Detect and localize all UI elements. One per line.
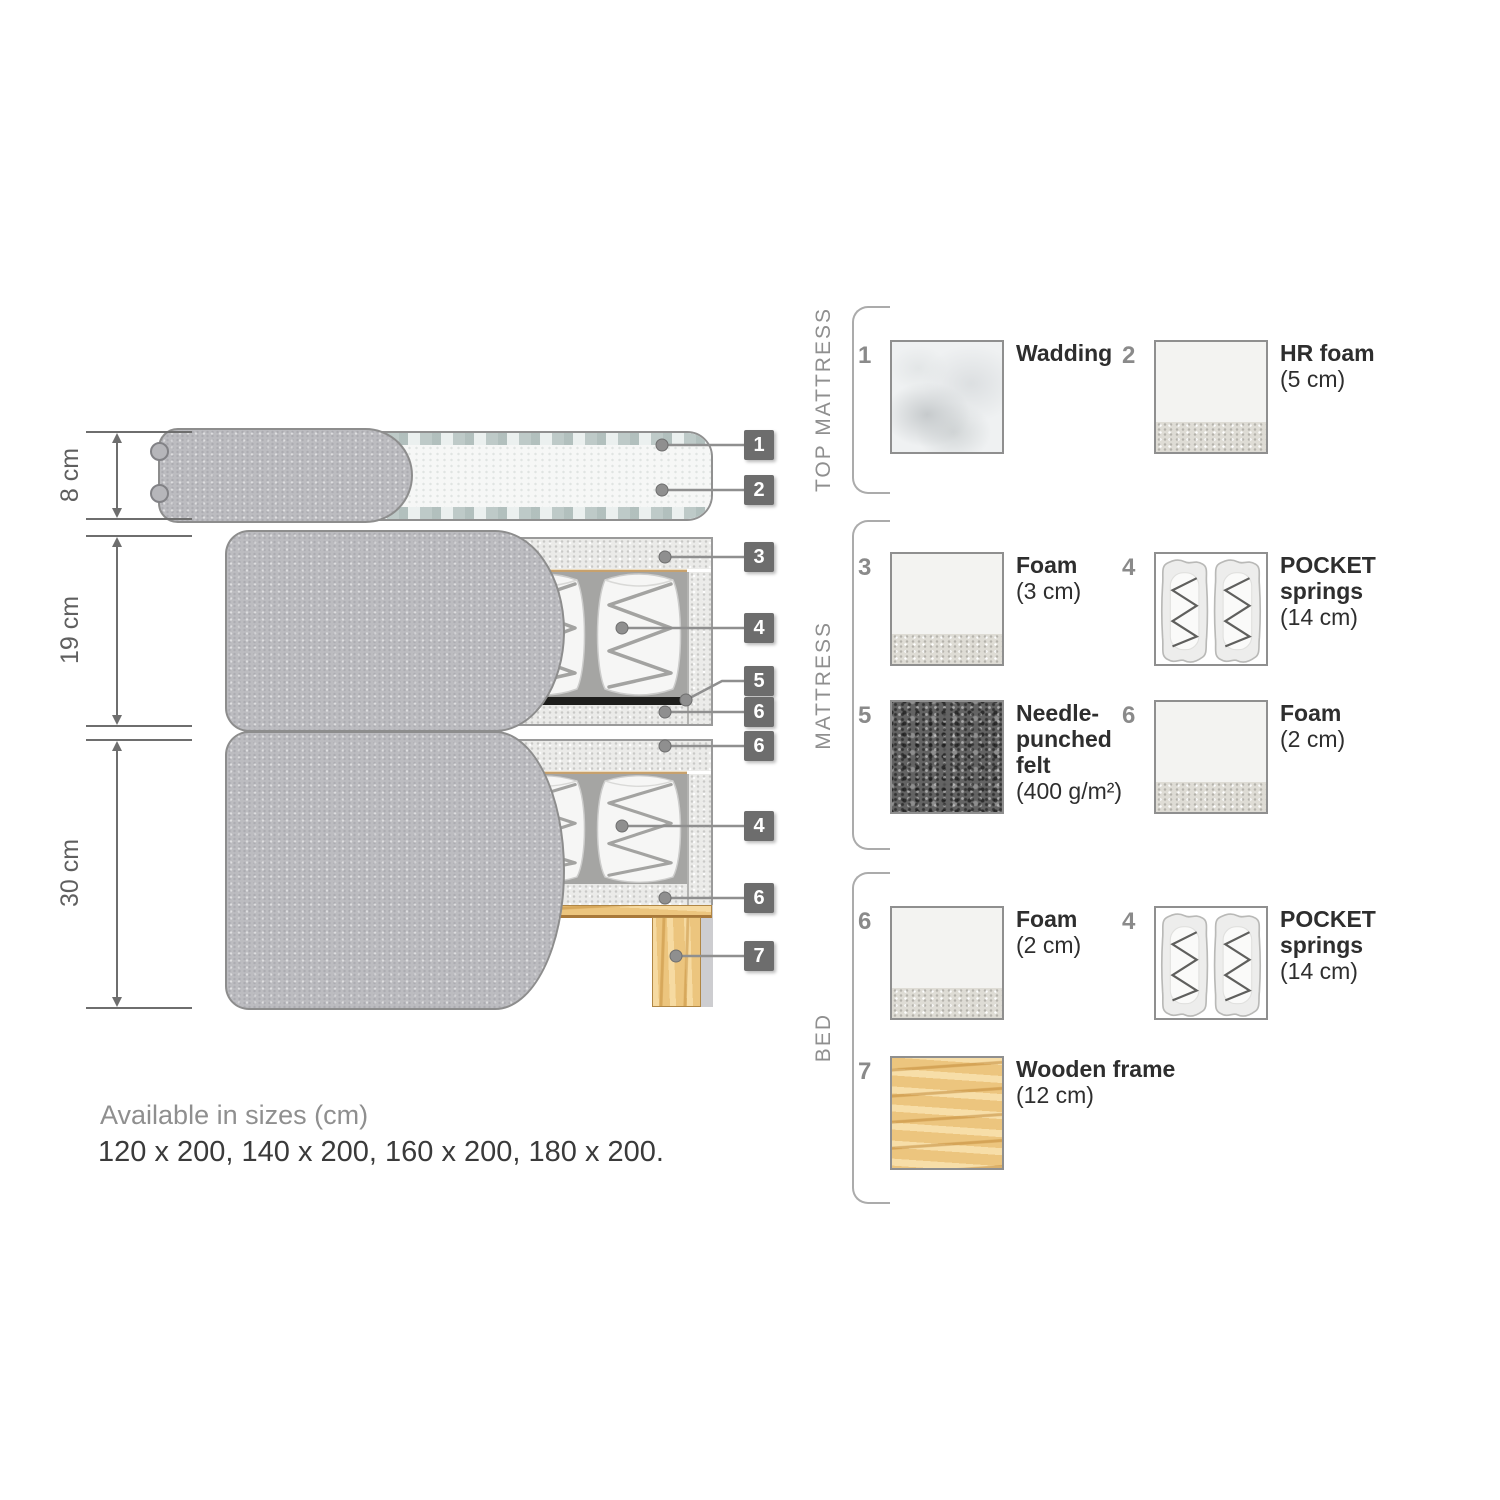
bed-side-wall [687,774,711,907]
callout-tag-1: 1 [744,430,774,460]
bed-frame-right-leg [652,917,701,1007]
available-sizes-title: Available in sizes (cm) [100,1100,368,1131]
legend-item-felt: 5 Needle-punched felt (400 g/m²) [858,700,1138,814]
foam-swatch [890,906,1004,1020]
legend-item-number: 5 [858,702,886,730]
legend-item-name: POCKET springs [1280,906,1440,958]
legend-group-title-bed: BED [804,872,844,1204]
legend-item-wadding: 1 Wadding [858,340,1138,454]
callout-tag-2: 2 [744,475,774,505]
available-sizes-list: 120 x 200, 140 x 200, 160 x 200, 180 x 2… [98,1136,664,1169]
dimension-label-top-mattress: 8 cm [55,425,85,525]
foam-swatch [1154,340,1268,454]
callout-tag-6b: 6 [744,731,774,761]
legend-item-name: Needle-punched felt [1016,700,1138,778]
legend-item-detail: (14 cm) [1280,604,1440,632]
legend-item-hr-foam: 2 HR foam (5 cm) [1122,340,1440,454]
legend-item-detail: (400 g/m²) [1016,778,1138,806]
legend-item-wooden-frame: 7 Wooden frame (12 cm) [858,1056,1276,1170]
pocket-springs-swatch [1154,552,1268,666]
callout-tag-4b: 4 [744,811,774,841]
legend-item-detail: (14 cm) [1280,958,1440,986]
legend-item-name: Wadding [1016,340,1138,366]
mattress-side-wall [687,572,711,724]
legend-item-name: Wooden frame [1016,1056,1276,1082]
legend-group-title-mattress: MATTRESS [804,520,844,850]
legend-item-foam-2cm: 6 Foam (2 cm) [1122,700,1440,814]
legend-item-detail: (5 cm) [1280,366,1440,394]
fabric-button [150,484,169,503]
dimension-label-mattress: 19 cm [55,580,85,680]
legend-item-name: HR foam [1280,340,1440,366]
legend-group-title-text: BED [812,1013,836,1062]
callout-tag-4: 4 [744,613,774,643]
legend-group-title-top-mattress: TOP MATTRESS [804,306,844,494]
foam-swatch [1154,700,1268,814]
pocket-springs-swatch [1154,906,1268,1020]
bed-fabric-cover [225,731,565,1010]
legend-item-number: 2 [1122,342,1150,370]
top-mattress-fabric-cover [158,428,413,523]
legend-item-bed-foam: 6 Foam (2 cm) [858,906,1138,1020]
foam-swatch [890,552,1004,666]
fabric-button [150,442,169,461]
callout-tag-5: 5 [744,666,774,696]
legend-item-number: 3 [858,554,886,582]
legend-item-foam-3cm: 3 Foam (3 cm) [858,552,1138,666]
legend-group-title-text: TOP MATTRESS [812,307,836,492]
legend-item-number: 6 [1122,702,1150,730]
legend-item-pocket-springs: 4 POCKET springs (14 cm) [1122,552,1440,666]
legend-item-number: 4 [1122,554,1150,582]
felt-swatch [890,700,1004,814]
legend-group-title-text: MATTRESS [812,621,836,750]
legend-item-name: Foam [1280,700,1440,726]
bed-frame-right-edge [700,905,713,1007]
legend-item-number: 4 [1122,908,1150,936]
legend-item-bed-pocket-springs: 4 POCKET springs (14 cm) [1122,906,1440,1020]
legend-item-detail: (12 cm) [1016,1082,1276,1110]
legend-item-name: POCKET springs [1280,552,1440,604]
mattress-fabric-cover [225,530,565,732]
legend-item-detail: (3 cm) [1016,578,1138,606]
mattress-construction-diagram: 1 2 3 4 5 6 6 4 6 7 8 cm 19 cm 30 cm TOP… [0,0,1500,1500]
legend-item-name: Foam [1016,906,1138,932]
legend-item-number: 6 [858,908,886,936]
callout-tag-6c: 6 [744,883,774,913]
wadding-swatch [890,340,1004,454]
dimension-label-bed: 30 cm [55,823,85,923]
legend-item-name: Foam [1016,552,1138,578]
legend-item-number: 1 [858,342,886,370]
callout-tag-7: 7 [744,941,774,971]
legend-item-detail: (2 cm) [1280,726,1440,754]
callout-tag-3: 3 [744,542,774,572]
callout-tag-6: 6 [744,697,774,727]
legend-item-detail: (2 cm) [1016,932,1138,960]
wood-swatch [890,1056,1004,1170]
legend-item-number: 7 [858,1058,886,1086]
